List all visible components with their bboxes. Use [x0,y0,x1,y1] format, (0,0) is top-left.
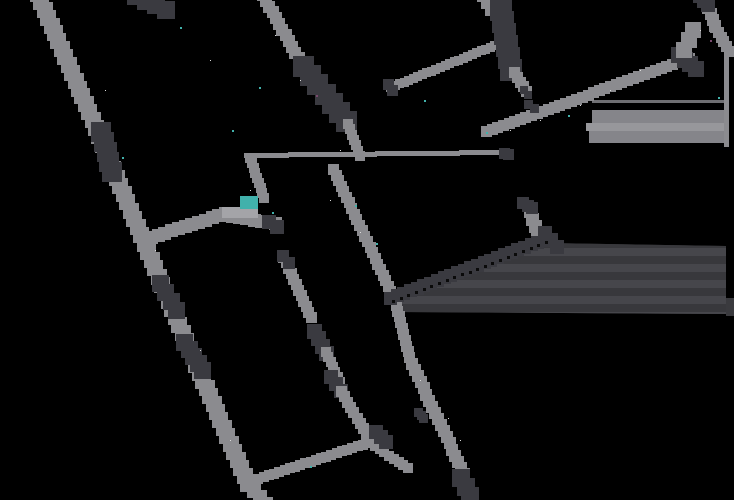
white-speckle [580,105,581,106]
white-speckle [448,418,449,419]
wall-block [685,22,701,38]
dot [507,256,510,259]
wall-block [419,414,428,423]
teal-speckle [232,130,234,132]
wall-block [259,193,269,203]
teal-speckle [718,97,720,99]
dot [461,273,464,276]
slab-band-1 [592,110,728,123]
white-speckle [700,30,701,31]
purple-speckle [710,40,712,42]
dot [491,262,494,265]
slab-band-3 [589,131,728,143]
wall-block [461,487,479,500]
purple-speckle [316,95,318,97]
white-speckle [340,150,341,151]
white-speckle [640,70,641,71]
white-speckle [105,90,106,91]
white-speckle [155,250,156,251]
wall-block [194,362,211,379]
white-speckle [210,60,211,61]
dot [530,247,533,250]
white-speckle [510,130,511,131]
dot [469,271,472,274]
dot [499,259,502,262]
white-speckle [360,232,361,233]
slab-top-line [592,100,726,103]
dot [423,288,426,291]
wall-block [379,435,393,449]
teal-speckle [180,27,182,29]
stripe-band [380,296,734,304]
white-speckle [330,200,331,201]
white-speckle [610,90,611,91]
wall-block [283,257,295,269]
dot [476,268,479,271]
right-vertical-line [724,49,729,147]
wall-block [724,93,729,98]
dot [522,250,525,253]
dock-marker [240,196,258,209]
wall-block [526,202,538,214]
teal-speckle [424,100,426,102]
wall-block [168,302,185,319]
floor-plan-canvas [0,0,734,500]
white-speckle [230,440,231,441]
dot [453,276,456,279]
white-speckle [540,120,541,121]
wall-block [102,162,122,182]
teal-speckle [310,466,312,468]
dot [484,265,487,268]
dot [400,297,403,300]
teal-speckle [568,115,570,117]
teal-speckle [486,132,488,134]
wall3-cap [499,148,514,160]
dot [537,244,540,247]
dot [446,279,449,282]
wall-block [724,142,729,147]
slab-band-2 [586,123,728,131]
stripe-corner [726,298,734,316]
floor-plan-svg [0,0,734,500]
wall-block [503,149,514,160]
teal-speckle [376,243,378,245]
teal-speckle [355,205,357,207]
white-speckle [300,80,301,81]
teal-speckle [259,87,261,89]
dot [438,282,441,285]
teal-speckle [122,157,124,159]
wall-block [688,61,704,77]
wall-block [524,91,532,99]
wall-block [403,463,413,473]
wall-block [550,240,564,254]
wall-block [157,1,175,19]
teal-speckle [272,212,274,214]
stripe-band [380,304,734,312]
dot [545,241,548,244]
white-speckle [460,440,461,441]
wall-block [530,104,539,113]
white-speckle [250,190,251,191]
white-speckle [275,35,276,36]
wall-block [387,85,398,96]
dot [407,294,410,297]
dot [392,300,395,303]
dot [415,291,418,294]
dot [430,285,433,288]
wall-block [270,220,284,234]
dot [514,253,517,256]
wall-block [306,312,317,323]
white-speckle [420,380,421,381]
white-speckle [200,350,201,351]
wall-block [701,0,715,12]
